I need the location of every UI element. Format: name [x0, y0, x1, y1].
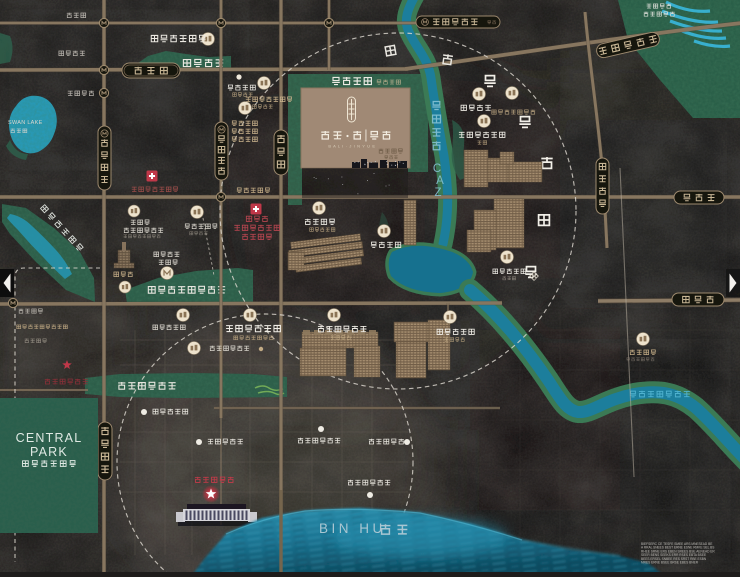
svg-text:MRES ERNE BSEE BRSE EBES BNER: MRES ERNE BSEE BRSE EBES BNER	[641, 561, 699, 565]
svg-text:B A L I · J I N Y U E: B A L I · J I N Y U E	[328, 144, 375, 149]
svg-text:Z: Z	[434, 187, 441, 199]
svg-text:A: A	[436, 175, 444, 187]
svg-text:PARK: PARK	[30, 445, 68, 459]
svg-text:BIN HU: BIN HU	[319, 521, 386, 536]
svg-text:C: C	[433, 163, 441, 175]
svg-text:CENTRAL: CENTRAL	[16, 431, 83, 445]
svg-text:SWAN LAKE: SWAN LAKE	[8, 120, 43, 126]
